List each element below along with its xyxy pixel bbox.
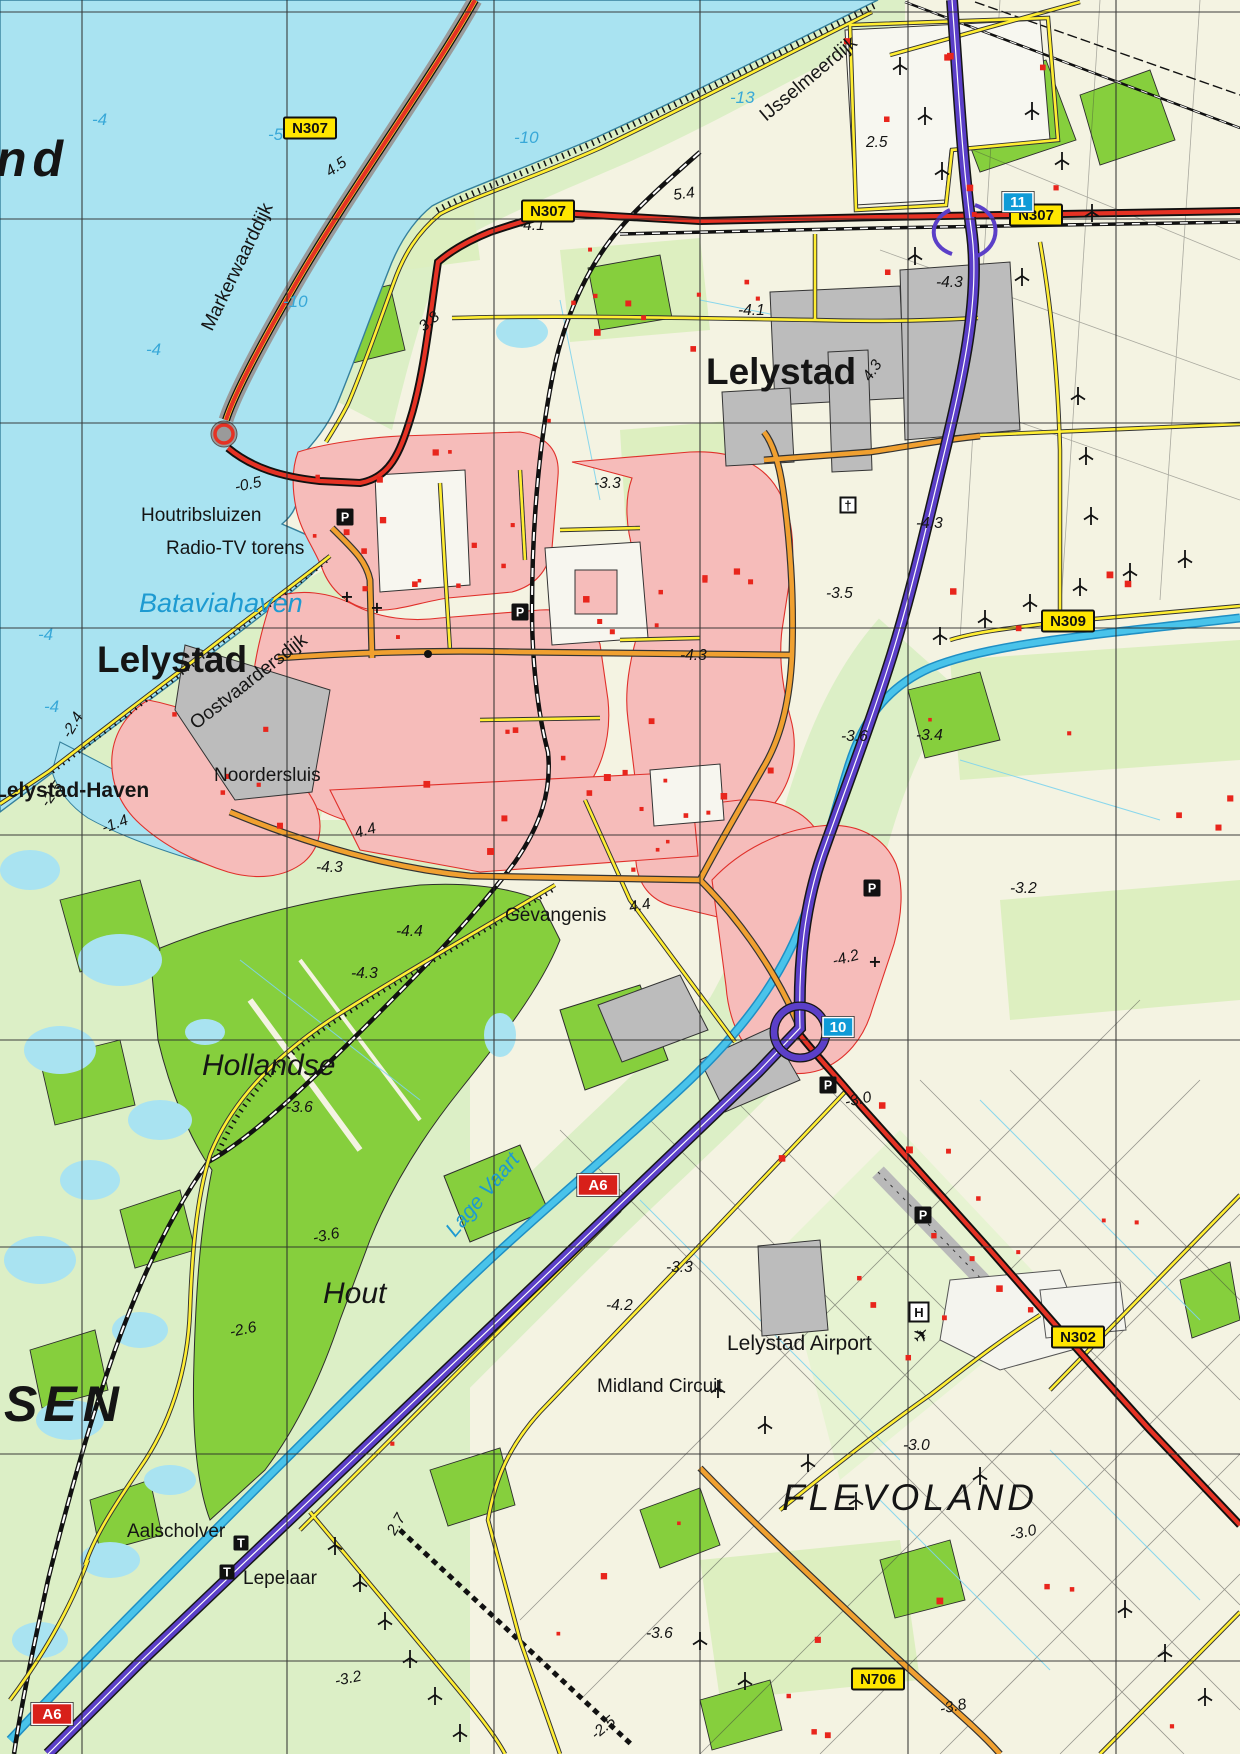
dot-icon [424, 650, 432, 658]
map-label: -3.3 [666, 1259, 693, 1276]
road-badge-N307: N307 [522, 201, 574, 222]
parking-icon: P [512, 604, 529, 621]
map-label: -4 [38, 625, 53, 644]
parking-icon: P [864, 880, 881, 897]
tower-icon: T [234, 1536, 249, 1551]
map-label: Lelystad-Haven [0, 779, 149, 802]
map-label: -4.4 [396, 923, 423, 940]
map-label: -4.3 [936, 274, 963, 291]
svg-text:N706: N706 [860, 1671, 896, 1688]
map-label: -3.6 [286, 1099, 313, 1116]
road-badge-A6: A6 [577, 1173, 620, 1197]
map-label: Radio-TV torens [166, 538, 304, 559]
svg-text:+: + [340, 587, 353, 606]
map-label: Midland Circuit [597, 1376, 723, 1397]
map-label: -4.3 [351, 965, 378, 982]
svg-text:10: 10 [830, 1019, 847, 1036]
map-label: -4.3 [916, 515, 943, 532]
map-label: -4.1 [738, 302, 765, 319]
map-label: Houtribsluizen [141, 505, 261, 526]
map-label: nd [0, 131, 69, 187]
map-label: -3.6 [646, 1625, 673, 1642]
svg-text:P: P [341, 511, 349, 525]
map-label: -4 [146, 340, 161, 359]
topographic-map: LelystadLelystadLelystad-HavenHoutribslu… [0, 0, 1240, 1754]
road-badge-11: 11 [1002, 191, 1035, 213]
map-label: Gevangenis [505, 905, 606, 926]
road-badge-N307: N307 [284, 118, 336, 139]
svg-text:T: T [237, 1537, 245, 1551]
road-badge-N309: N309 [1042, 611, 1094, 632]
map-label: Aalscholver [127, 1521, 226, 1542]
road-badge-N706: N706 [852, 1669, 904, 1690]
map-label: Bataviahaven [139, 588, 303, 618]
map-label: -10 [283, 292, 308, 311]
map-label: Lepelaar [243, 1568, 318, 1589]
map-label: -3.4 [916, 727, 943, 744]
map-label: -3.5 [826, 585, 853, 602]
map-label: -5 [268, 125, 284, 144]
svg-text:+: + [868, 952, 881, 971]
map-label: -3.0 [903, 1437, 930, 1454]
map-label: -4.3 [316, 859, 343, 876]
svg-text:N307: N307 [530, 203, 566, 220]
map-label: -3.3 [594, 475, 621, 492]
parking-icon: P [915, 1207, 932, 1224]
svg-text:N309: N309 [1050, 613, 1086, 630]
map-label: Noordersluis [214, 765, 321, 786]
road-badge-N302: N302 [1052, 1327, 1104, 1348]
svg-text:A6: A6 [588, 1177, 607, 1194]
svg-text:H: H [914, 1305, 923, 1320]
map-label: Lelystad [97, 639, 247, 680]
map-label: Lelystad [706, 351, 856, 392]
church-icon: † [841, 498, 856, 514]
map-label: 5.4 [672, 184, 696, 204]
map-label: -3.6 [841, 728, 868, 745]
parking-icon: P [337, 509, 354, 526]
svg-text:T: T [223, 1566, 231, 1580]
map-label: SEN [4, 1376, 125, 1432]
tower-icon: T [220, 1565, 235, 1580]
svg-text:11: 11 [1010, 194, 1026, 211]
parking-icon: P [820, 1077, 837, 1094]
map-label: Hout [323, 1277, 388, 1310]
road-badge-10: 10 [822, 1016, 855, 1038]
map-label: Hollandse [202, 1049, 335, 1082]
svg-text:A6: A6 [42, 1706, 61, 1723]
svg-text:N307: N307 [292, 120, 328, 137]
map-label: FLEVOLAND [782, 1477, 1038, 1518]
crossroad-icon: + [340, 587, 353, 606]
map-label: -13 [730, 88, 755, 107]
svg-text:N302: N302 [1060, 1329, 1096, 1346]
map-label: Lelystad Airport [727, 1332, 872, 1355]
map-label: -4 [92, 110, 107, 129]
map-label: -4 [44, 697, 59, 716]
map-label: -10 [514, 128, 539, 147]
road-badge-A6: A6 [31, 1702, 74, 1726]
map-canvas: LelystadLelystadLelystad-HavenHoutribslu… [0, 0, 1240, 1754]
svg-text:P: P [868, 882, 876, 896]
svg-text:P: P [824, 1079, 832, 1093]
crossroad-icon: + [868, 952, 881, 971]
svg-text:†: † [844, 498, 851, 513]
svg-text:P: P [516, 606, 524, 620]
map-label: 2.5 [865, 134, 888, 151]
map-label: -4.2 [606, 1297, 633, 1314]
h-badge-icon: H [910, 1303, 929, 1322]
svg-text:P: P [919, 1209, 927, 1223]
svg-text:+: + [370, 598, 383, 617]
crossroad-icon: + [370, 598, 383, 617]
map-label: -4.3 [680, 647, 707, 664]
map-label: -3.2 [1010, 880, 1037, 897]
